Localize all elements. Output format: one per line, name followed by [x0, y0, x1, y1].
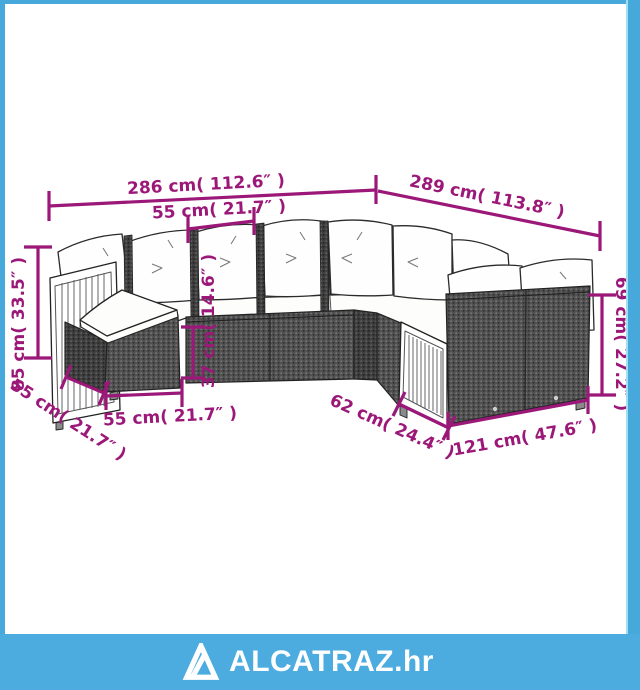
dimension-label: 85 cm( 33.5″ )	[9, 257, 29, 391]
brand-name: ALCATRAZ.hr	[229, 645, 434, 679]
dimension-label: 55 cm( 21.7″ )	[102, 403, 237, 430]
product-dimension-image: 286 cm( 112.6″ ) 289 cm( 113.8″ ) 55 cm(…	[0, 0, 640, 690]
alcatraz-triangle-logo-icon	[182, 643, 220, 681]
dimension-right-arm-height: 69 cm( 27.2″ )	[588, 277, 631, 411]
sofa-set	[50, 220, 594, 430]
frame-border-left	[0, 0, 5, 690]
frame-border-right	[628, 0, 640, 690]
brand-lockup: ALCATRAZ.hr	[182, 643, 434, 681]
footer-brand-bar: ALCATRAZ.hr	[0, 634, 640, 690]
dimension-total-height: 85 cm( 33.5″ )	[9, 247, 52, 391]
frame-border-top	[0, 0, 640, 4]
sofa-illustration: 286 cm( 112.6″ ) 289 cm( 113.8″ ) 55 cm(…	[0, 0, 640, 634]
dimension-label: 289 cm( 113.8″ )	[408, 171, 567, 222]
dimension-label: 37 cm( 14.6″ )	[199, 254, 219, 388]
